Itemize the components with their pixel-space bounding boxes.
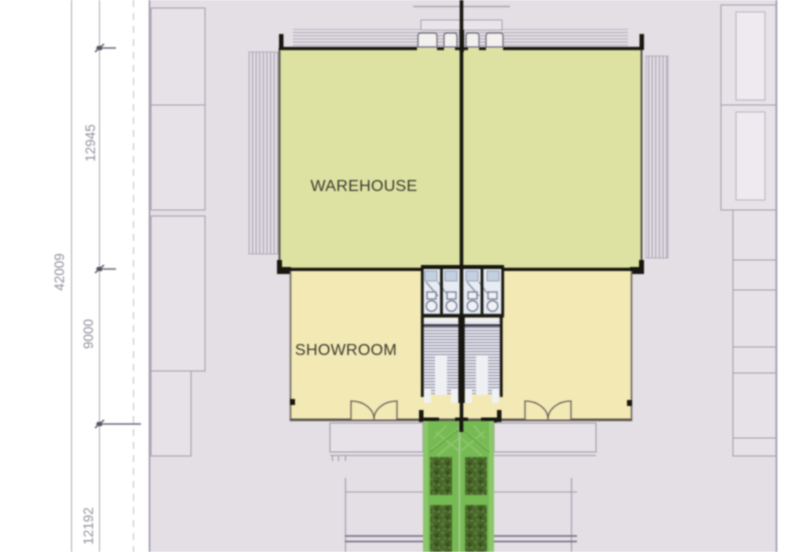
svg-text:12192: 12192 (81, 507, 96, 545)
svg-text:12945: 12945 (83, 124, 98, 162)
svg-text:9000: 9000 (81, 319, 96, 349)
svg-text:42009: 42009 (52, 253, 67, 291)
svg-text:SHOWROOM: SHOWROOM (295, 342, 397, 359)
svg-text:WAREHOUSE: WAREHOUSE (310, 178, 417, 195)
